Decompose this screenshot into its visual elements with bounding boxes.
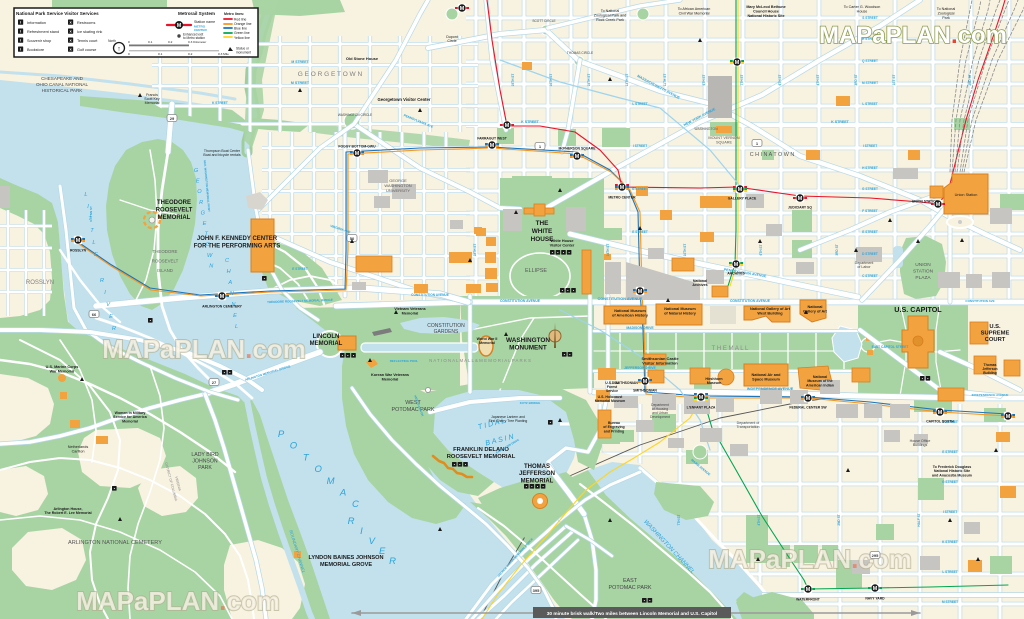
svg-text:1ST ST: 1ST ST [892, 75, 896, 86]
svg-text:Old Stone House: Old Stone House [346, 56, 379, 61]
svg-text:Souvenir shop: Souvenir shop [27, 39, 51, 43]
svg-text:M: M [460, 6, 465, 12]
svg-text:WHITE: WHITE [532, 228, 553, 235]
svg-text:L STREET: L STREET [862, 102, 877, 106]
svg-text:ROSSLYN: ROSSLYN [70, 249, 87, 253]
svg-text:K STREET: K STREET [212, 101, 228, 105]
svg-text:Memorial: Memorial [382, 377, 399, 381]
svg-text:E: E [109, 314, 113, 320]
svg-text:T H E M A L L: T H E M A L L [712, 346, 749, 352]
svg-text:N A T I O N A L M A L L &: N A T I O N A L M A L L & M E M O R I A … [429, 358, 531, 363]
svg-text:↑: ↑ [117, 46, 121, 53]
svg-text:M: M [620, 185, 625, 191]
svg-text:Memorial Museum: Memorial Museum [595, 399, 626, 403]
svg-text:27: 27 [212, 380, 217, 385]
svg-text:G E O R G E T O W N: G E O R G E T O W N [298, 71, 363, 78]
svg-text:6TH ST: 6TH ST [778, 74, 782, 85]
svg-text:C: C [352, 499, 359, 510]
svg-text:G STREET: G STREET [942, 480, 958, 484]
svg-text:KUTZ BRIDGE: KUTZ BRIDGE [520, 401, 541, 405]
svg-text:E: E [196, 179, 200, 185]
svg-text:E STREET: E STREET [292, 267, 308, 271]
svg-text:G: G [194, 168, 199, 174]
svg-text:M: M [355, 151, 360, 157]
svg-text:Vietnam Veterans: Vietnam Veterans [394, 307, 426, 311]
svg-text:Blue line: Blue line [234, 27, 247, 31]
svg-text:West Building: West Building [757, 311, 783, 315]
svg-text:of Labor: of Labor [857, 265, 871, 269]
svg-text:Memorial: Memorial [479, 341, 495, 345]
svg-text:Orange line: Orange line [234, 22, 252, 26]
svg-text:MAPaPLAN.com: MAPaPLAN.com [819, 22, 1007, 49]
svg-text:M: M [734, 262, 739, 268]
svg-text:Council House: Council House [753, 9, 779, 13]
svg-text:OHIO CANAL NATIONAL: OHIO CANAL NATIONAL [36, 82, 89, 87]
svg-text:Memorial: Memorial [145, 101, 160, 105]
svg-text:SUPREME: SUPREME [981, 331, 1010, 337]
svg-text:CONSTITUTION AVENUE: CONSTITUTION AVENUE [598, 297, 643, 301]
svg-text:30 minute brisk walk/Two miles: 30 minute brisk walk/Two miles between L… [547, 611, 718, 617]
svg-text:E STREET: E STREET [942, 450, 958, 454]
svg-text:MEMORIAL GROVE: MEMORIAL GROVE [320, 562, 372, 568]
svg-text:MAPaPLAN.com: MAPaPLAN.com [708, 544, 912, 574]
svg-text:ROOSEVELT MEMORIAL: ROOSEVELT MEMORIAL [447, 454, 516, 460]
svg-text:LYNDON BAINES JOHNSON: LYNDON BAINES JOHNSON [308, 555, 383, 561]
svg-text:MEMORIAL: MEMORIAL [521, 478, 554, 484]
svg-text:M: M [738, 187, 743, 193]
svg-text:T: T [204, 232, 208, 238]
svg-text:S STREET: S STREET [862, 16, 878, 20]
svg-text:To Carter G. Woodson: To Carter G. Woodson [844, 5, 881, 9]
svg-text:POTOMAC PARK: POTOMAC PARK [392, 407, 435, 413]
svg-text:Archives: Archives [692, 283, 707, 287]
svg-text:I: I [360, 526, 363, 537]
svg-text:FARRAGUT WEST: FARRAGUT WEST [477, 137, 508, 141]
svg-text:National Museum: National Museum [614, 309, 646, 313]
svg-text:White House: White House [551, 239, 574, 243]
svg-text:E: E [94, 252, 98, 258]
svg-text:McPHERSON SQUARE: McPHERSON SQUARE [559, 147, 597, 151]
svg-text:CHESAPEAKE AND: CHESAPEAKE AND [41, 76, 84, 81]
svg-text:WATERFRONT: WATERFRONT [796, 598, 821, 602]
svg-text:FEDERAL CENTER SW: FEDERAL CENTER SW [789, 406, 827, 410]
svg-text:Civil War Memorial: Civil War Memorial [679, 11, 710, 15]
svg-text:i: i [20, 47, 21, 52]
svg-text:i: i [20, 38, 21, 43]
svg-text:National Park Service Visitor: National Park Service Visitor Services [16, 11, 99, 16]
svg-text:U.S. CAPITOL: U.S. CAPITOL [894, 305, 942, 314]
svg-text:CONSTITUTION AVENUE: CONSTITUTION AVENUE [411, 293, 449, 297]
svg-text:2ND ST: 2ND ST [968, 74, 972, 85]
svg-text:0.2: 0.2 [188, 52, 193, 56]
svg-text:UNION: UNION [915, 262, 931, 268]
svg-text:3RD ST: 3RD ST [835, 244, 839, 255]
svg-text:Space Museum: Space Museum [752, 377, 780, 381]
svg-text:10TH ST: 10TH ST [683, 244, 687, 257]
svg-text:M: M [806, 587, 811, 593]
svg-text:WASHINGTON: WASHINGTON [506, 337, 550, 344]
svg-text:M STREET: M STREET [942, 600, 958, 604]
svg-text:Station name: Station name [194, 20, 215, 24]
svg-text:R: R [199, 200, 203, 206]
svg-text:0: 0 [128, 40, 130, 44]
svg-text:HISTORICAL PARK: HISTORICAL PARK [42, 88, 84, 93]
svg-text:G STREET: G STREET [632, 187, 648, 191]
svg-text:M: M [327, 476, 335, 487]
svg-text:Green line: Green line [234, 31, 250, 35]
svg-text:ARLINGTON NATIONAL CEMETERY: ARLINGTON NATIONAL CEMETERY [68, 540, 162, 546]
svg-text:Rock Creek Park: Rock Creek Park [596, 18, 624, 22]
svg-text:of American History: of American History [612, 313, 649, 317]
svg-text:ROSSLYN: ROSSLYN [26, 280, 54, 286]
svg-text:monument: monument [236, 50, 251, 54]
svg-text:M: M [575, 154, 580, 160]
svg-text:National: National [808, 305, 823, 309]
svg-text:THEODORE: THEODORE [157, 200, 191, 206]
svg-text:M STREET: M STREET [291, 60, 309, 64]
svg-text:Yellow line: Yellow line [234, 36, 250, 40]
svg-text:O: O [206, 242, 211, 248]
svg-text:CONSTITUTION AVE: CONSTITUTION AVE [965, 299, 994, 303]
svg-text:0.3 Kilometer: 0.3 Kilometer [188, 40, 206, 44]
svg-text:ROOSEVELT: ROOSEVELT [156, 208, 193, 214]
svg-text:Memorial: Memorial [122, 419, 138, 423]
svg-text:EAST: EAST [623, 578, 638, 584]
svg-text:Buildings: Buildings [913, 443, 928, 447]
svg-text:THOMAS CIRCLE: THOMAS CIRCLE [567, 51, 593, 55]
svg-text:First Cherry Tree Planting: First Cherry Tree Planting [489, 419, 528, 423]
svg-text:To National: To National [601, 9, 620, 13]
svg-text:INDEPENDENCE AVENUE: INDEPENDENCE AVENUE [972, 393, 1009, 397]
svg-text:American Indian: American Indian [806, 383, 834, 387]
svg-text:LADY BIRD: LADY BIRD [191, 452, 219, 458]
svg-text:i: i [20, 20, 21, 25]
svg-text:U.S. Marine Corps: U.S. Marine Corps [46, 365, 79, 369]
svg-text:Ice skating rink: Ice skating rink [77, 30, 102, 34]
svg-text:E STREET: E STREET [632, 230, 648, 234]
svg-text:11TH ST: 11TH ST [663, 74, 667, 87]
svg-text:Tennis court: Tennis court [77, 39, 98, 43]
svg-text:D STREET: D STREET [862, 252, 878, 256]
svg-text:ISLAND: ISLAND [157, 268, 173, 273]
svg-text:66: 66 [92, 312, 97, 317]
svg-text:Visitor Center: Visitor Center [550, 243, 575, 247]
svg-text:UNION STATION: UNION STATION [912, 200, 939, 204]
svg-text:4TH ST: 4TH ST [816, 74, 820, 85]
svg-text:War Memorial: War Memorial [50, 369, 75, 373]
svg-text:HALF ST: HALF ST [917, 513, 921, 527]
svg-text:0.2: 0.2 [168, 40, 173, 44]
svg-text:FOGGY BOTTOM-GWU: FOGGY BOTTOM-GWU [338, 145, 376, 149]
svg-text:A: A [339, 488, 346, 499]
svg-text:JEFFERSON: JEFFERSON [519, 471, 555, 477]
svg-text:2ND ST: 2ND ST [837, 514, 841, 525]
svg-text:Museum: Museum [707, 381, 722, 385]
svg-text:E STREET: E STREET [862, 230, 878, 234]
svg-text:Refreshment stand: Refreshment stand [27, 30, 59, 34]
svg-text:Restrooms: Restrooms [77, 21, 95, 25]
svg-text:M: M [806, 396, 811, 402]
svg-text:13TH ST: 13TH ST [625, 74, 629, 87]
svg-text:18TH ST: 18TH ST [473, 244, 477, 257]
svg-text:ARLINGTON CEMETERY: ARLINGTON CEMETERY [202, 305, 242, 309]
svg-text:Zoological Park and: Zoological Park and [594, 13, 627, 17]
svg-text:16TH ST: 16TH ST [549, 74, 553, 87]
svg-text:Service: Service [606, 389, 618, 393]
svg-text:15TH ST: 15TH ST [587, 74, 591, 87]
svg-text:MAPaPLAN.com: MAPaPLAN.com [76, 586, 280, 616]
svg-text:National Museum: National Museum [664, 307, 696, 311]
svg-text:THOMAS: THOMAS [524, 464, 550, 470]
svg-text:ROOSEVELT: ROOSEVELT [152, 259, 179, 264]
svg-text:of Natural History: of Natural History [664, 311, 697, 315]
svg-text:House: House [857, 9, 868, 13]
svg-text:Visitor Information: Visitor Information [642, 361, 678, 366]
svg-text:M: M [505, 123, 510, 129]
svg-text:SMITHSONIAN: SMITHSONIAN [633, 389, 657, 393]
svg-text:LINCOLN: LINCOLN [313, 334, 340, 340]
svg-text:K STREET: K STREET [942, 540, 958, 544]
svg-text:U.S.: U.S. [989, 324, 1001, 330]
svg-text:Q STREET: Q STREET [862, 59, 878, 63]
svg-text:Memorial: Memorial [402, 311, 419, 315]
svg-text:Development: Development [650, 415, 670, 419]
svg-text:I STREET: I STREET [943, 510, 957, 514]
svg-text:O: O [290, 441, 298, 452]
svg-text:Building: Building [983, 371, 997, 375]
svg-text:and Anacostia Museum: and Anacostia Museum [932, 473, 972, 477]
svg-text:JOHNSON: JOHNSON [192, 458, 218, 464]
svg-text:M: M [938, 410, 943, 416]
svg-text:Transportation: Transportation [736, 425, 759, 429]
svg-text:JEFFERSON DRIVE: JEFFERSON DRIVE [624, 366, 656, 370]
svg-text:7TH ST: 7TH ST [740, 74, 744, 85]
svg-text:3RD ST: 3RD ST [854, 74, 858, 85]
svg-text:0.3 Mile: 0.3 Mile [218, 52, 229, 56]
svg-text:REFLECTING POOL: REFLECTING POOL [390, 359, 419, 363]
svg-text:19TH ST: 19TH ST [511, 74, 515, 87]
svg-text:i: i [20, 29, 21, 34]
svg-text:SCOTT CIRCLE: SCOTT CIRCLE [532, 19, 555, 23]
svg-text:National Historic Site: National Historic Site [747, 14, 784, 18]
svg-text:C H I N A T O W N: C H I N A T O W N [750, 152, 795, 158]
svg-text:ELLIPSE: ELLIPSE [525, 268, 547, 274]
svg-text:O: O [315, 464, 323, 475]
svg-text:L: L [235, 324, 238, 330]
svg-text:M STREET: M STREET [862, 81, 878, 85]
svg-text:E: E [379, 546, 386, 557]
svg-text:M STREET: M STREET [291, 81, 310, 85]
svg-text:295: 295 [872, 553, 879, 558]
svg-text:C STREET: C STREET [862, 274, 878, 278]
svg-text:0.1: 0.1 [148, 40, 153, 44]
svg-text:L: L [92, 240, 95, 246]
svg-text:Carillon: Carillon [72, 449, 85, 453]
svg-text:JOHN F. KENNEDY CENTER: JOHN F. KENNEDY CENTER [197, 236, 278, 242]
svg-text:M: M [638, 289, 643, 295]
svg-text:Golf course: Golf course [77, 48, 96, 52]
svg-text:E: E [203, 221, 207, 227]
svg-text:E: E [233, 313, 237, 319]
svg-text:WASHINGTON CIRCLE: WASHINGTON CIRCLE [338, 113, 372, 117]
svg-text:M: M [643, 379, 648, 385]
svg-text:Metrorail System: Metrorail System [178, 11, 215, 16]
svg-text:Red line: Red line [234, 17, 247, 21]
svg-text:PLAZA: PLAZA [915, 275, 931, 281]
svg-text:K STREET: K STREET [831, 120, 850, 124]
svg-text:and Printing: and Printing [604, 429, 624, 433]
svg-text:SQUARE: SQUARE [716, 141, 733, 145]
svg-text:P: P [278, 429, 285, 440]
svg-text:Metro lines:: Metro lines: [224, 12, 244, 16]
svg-text:I STREET: I STREET [863, 144, 877, 148]
svg-text:Bookstore: Bookstore [27, 48, 44, 52]
svg-text:G: G [201, 210, 206, 216]
svg-text:JUDICIARY SQ: JUDICIARY SQ [788, 206, 812, 210]
svg-text:L: L [84, 192, 87, 198]
svg-text:9TH ST: 9TH ST [702, 74, 706, 85]
svg-text:M: M [177, 23, 181, 29]
svg-text:0: 0 [128, 52, 130, 56]
svg-text:F STREET: F STREET [862, 209, 877, 213]
svg-text:National Air and: National Air and [752, 373, 782, 377]
svg-text:4TH ST: 4TH ST [757, 514, 761, 525]
svg-text:29: 29 [170, 116, 175, 121]
svg-text:H STREET: H STREET [862, 166, 878, 170]
svg-text:M: M [699, 395, 704, 401]
svg-text:METRO CENTER: METRO CENTER [608, 196, 636, 200]
svg-text:MONUMENT: MONUMENT [509, 345, 547, 352]
svg-text:A: A [227, 280, 232, 286]
svg-text:To National: To National [937, 7, 956, 11]
svg-text:STATION: STATION [913, 269, 934, 275]
svg-text:CONSTITUTION AVENUE: CONSTITUTION AVENUE [730, 299, 771, 303]
svg-text:M: M [220, 294, 225, 300]
svg-text:Netherlands: Netherlands [68, 445, 89, 449]
svg-text:THEODORE: THEODORE [153, 249, 178, 254]
svg-text:L STREET: L STREET [942, 570, 957, 574]
svg-text:M: M [490, 143, 495, 149]
svg-text:0.1: 0.1 [158, 52, 163, 56]
svg-text:Information: Information [27, 21, 46, 25]
svg-text:COURT: COURT [985, 337, 1006, 343]
svg-text:M: M [873, 586, 878, 592]
svg-text:M: M [1006, 414, 1011, 420]
svg-text:K STREET: K STREET [521, 120, 540, 124]
svg-text:MOUNT VERNON: MOUNT VERNON [708, 136, 739, 140]
svg-text:The Robert E. Lee Memorial: The Robert E. Lee Memorial [44, 511, 91, 515]
svg-text:Korean War Veterans: Korean War Veterans [371, 373, 409, 377]
svg-text:EAST CAPITOL STREET: EAST CAPITOL STREET [872, 345, 909, 349]
svg-text:GARDENS: GARDENS [434, 329, 459, 335]
svg-text:7TH ST: 7TH ST [677, 514, 681, 525]
svg-text:W: W [207, 253, 213, 259]
svg-text:CENTER: CENTER [194, 28, 207, 32]
svg-text:Union Station: Union Station [955, 193, 978, 197]
svg-text:POTOMAC PARK: POTOMAC PARK [609, 585, 652, 591]
svg-text:MADISON DRIVE: MADISON DRIVE [626, 326, 654, 330]
svg-text:MAPaPLAN.com: MAPaPLAN.com [102, 334, 306, 364]
svg-text:MEMORIAL: MEMORIAL [158, 215, 191, 221]
svg-text:Circle: Circle [447, 39, 456, 43]
svg-text:NAVY YARD: NAVY YARD [865, 597, 885, 601]
svg-text:M: M [798, 196, 803, 202]
svg-text:UNIVERSITY: UNIVERSITY [386, 188, 410, 193]
svg-text:G STREET: G STREET [862, 187, 878, 191]
svg-text:MEMORIAL: MEMORIAL [310, 341, 343, 347]
svg-text:N LYNN ST: N LYNN ST [89, 206, 93, 222]
svg-text:395: 395 [533, 588, 540, 593]
svg-text:ARCHIVES: ARCHIVES [727, 272, 745, 276]
svg-text:O: O [197, 189, 202, 195]
svg-text:INDEPENDENCE AVENUE: INDEPENDENCE AVENUE [747, 387, 794, 391]
svg-text:L STREET: L STREET [632, 102, 647, 106]
svg-text:WASHINGTON: WASHINGTON [694, 127, 718, 131]
svg-text:THE: THE [536, 220, 550, 227]
svg-text:GALLERY PLACE: GALLERY PLACE [728, 197, 757, 201]
svg-text:M: M [735, 60, 740, 66]
svg-text:6TH ST: 6TH ST [759, 244, 763, 255]
svg-text:Zoological: Zoological [938, 11, 955, 15]
svg-text:North: North [108, 39, 116, 43]
svg-text:T: T [90, 228, 94, 234]
svg-text:R: R [348, 516, 355, 527]
svg-text:CAPITOL SOUTH: CAPITOL SOUTH [926, 420, 954, 424]
svg-text:R: R [389, 556, 396, 567]
svg-text:Boat and bicycle rentals: Boat and bicycle rentals [203, 153, 240, 157]
svg-text:Mary McLeod Bethune: Mary McLeod Bethune [746, 5, 785, 9]
svg-text:14TH ST: 14TH ST [606, 244, 610, 257]
svg-text:M: M [76, 238, 81, 244]
svg-text:Park: Park [942, 16, 950, 20]
svg-text:I STREET: I STREET [633, 144, 647, 148]
svg-text:L'ENFANT PLAZA: L'ENFANT PLAZA [687, 406, 716, 410]
svg-text:Georgetown Visitor Center: Georgetown Visitor Center [378, 97, 431, 102]
svg-text:To African American: To African American [678, 7, 711, 11]
svg-text:PARK: PARK [198, 465, 212, 471]
svg-text:CONSTITUTION AVENUE: CONSTITUTION AVENUE [500, 299, 541, 303]
svg-text:National Gallery of Art: National Gallery of Art [750, 307, 791, 311]
